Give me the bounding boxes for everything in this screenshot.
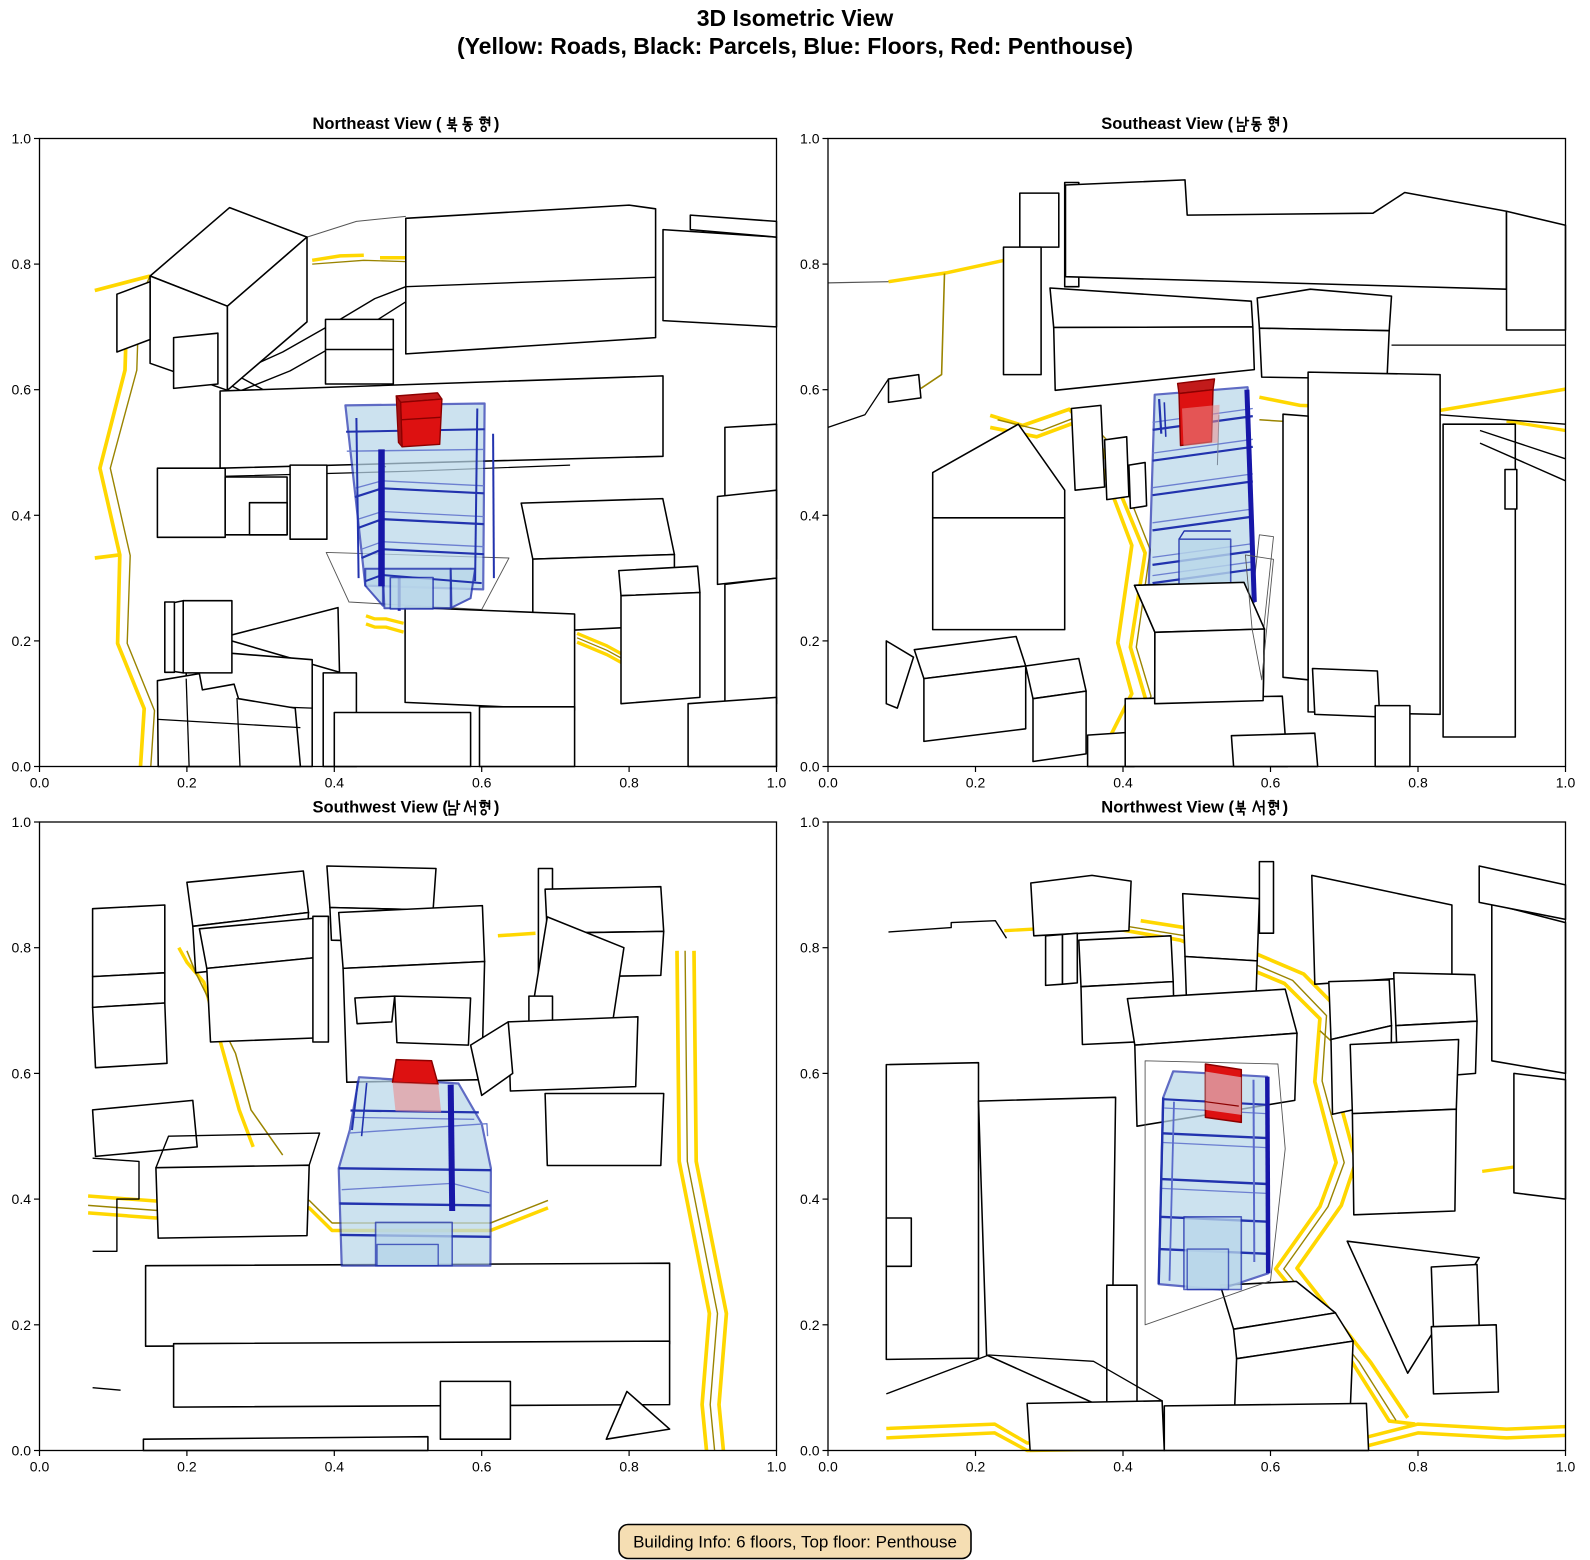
svg-text:0.6: 0.6: [800, 1065, 820, 1081]
svg-text:0.4: 0.4: [12, 507, 32, 523]
svg-text:0.0: 0.0: [30, 1459, 50, 1475]
svg-text:0.2: 0.2: [966, 1459, 986, 1475]
svg-text:0.2: 0.2: [177, 1459, 197, 1475]
svg-text:(Yellow: Roads, Black: Parcels: (Yellow: Roads, Black: Parcels, Blue: Fl…: [457, 33, 1133, 59]
svg-text:0.4: 0.4: [800, 507, 820, 523]
svg-text:0.2: 0.2: [800, 633, 820, 649]
svg-text:): ): [494, 115, 500, 133]
svg-text:0.6: 0.6: [12, 1065, 32, 1081]
svg-text:Northeast View (: Northeast View (: [313, 115, 442, 133]
svg-text:Southeast View (: Southeast View (: [1101, 115, 1233, 133]
svg-text:0.8: 0.8: [1408, 775, 1428, 791]
svg-text:0.0: 0.0: [800, 1443, 820, 1459]
svg-text:0.4: 0.4: [800, 1191, 820, 1207]
svg-text:3D Isometric View: 3D Isometric View: [697, 5, 894, 31]
svg-text:0.2: 0.2: [12, 1317, 32, 1333]
svg-text:0.6: 0.6: [1261, 775, 1281, 791]
svg-text:0.8: 0.8: [12, 256, 32, 272]
svg-text:1.0: 1.0: [800, 131, 820, 147]
svg-text:0.0: 0.0: [30, 775, 50, 791]
svg-text:1.0: 1.0: [1556, 1459, 1576, 1475]
svg-text:1.0: 1.0: [12, 814, 32, 830]
svg-text:0.8: 0.8: [800, 256, 820, 272]
svg-text:1.0: 1.0: [1556, 775, 1576, 791]
svg-text:0.8: 0.8: [800, 940, 820, 956]
svg-text:0.2: 0.2: [800, 1317, 820, 1333]
svg-text:0.0: 0.0: [800, 759, 820, 775]
svg-text:0.2: 0.2: [12, 633, 32, 649]
svg-text:1.0: 1.0: [800, 814, 820, 830]
svg-text:0.8: 0.8: [12, 940, 32, 956]
svg-text:0.0: 0.0: [818, 1459, 838, 1475]
svg-text:0.0: 0.0: [12, 759, 32, 775]
svg-text:0.6: 0.6: [800, 382, 820, 398]
svg-text:1.0: 1.0: [12, 131, 32, 147]
svg-text:): ): [494, 799, 500, 817]
svg-text:Northwest View (: Northwest View (: [1101, 799, 1234, 817]
svg-text:0.0: 0.0: [818, 775, 838, 791]
svg-text:0.4: 0.4: [325, 775, 345, 791]
svg-text:0.4: 0.4: [1113, 1459, 1133, 1475]
svg-text:0.4: 0.4: [12, 1191, 32, 1207]
svg-text:0.2: 0.2: [177, 775, 197, 791]
svg-text:0.0: 0.0: [12, 1443, 32, 1459]
svg-text:0.8: 0.8: [1408, 1459, 1428, 1475]
svg-text:0.4: 0.4: [1113, 775, 1133, 791]
svg-text:Building Info: 6 floors, Top f: Building Info: 6 floors, Top floor: Pent…: [633, 1533, 957, 1552]
svg-text:): ): [1283, 115, 1289, 133]
svg-text:0.6: 0.6: [12, 382, 32, 398]
svg-text:): ): [1283, 799, 1289, 817]
svg-text:0.8: 0.8: [619, 1459, 639, 1475]
svg-text:0.6: 0.6: [472, 775, 492, 791]
svg-text:0.6: 0.6: [1261, 1459, 1281, 1475]
svg-text:0.8: 0.8: [619, 775, 639, 791]
svg-text:0.4: 0.4: [325, 1459, 345, 1475]
svg-text:Southwest View (: Southwest View (: [313, 799, 449, 817]
svg-text:0.6: 0.6: [472, 1459, 492, 1475]
svg-text:0.2: 0.2: [966, 775, 986, 791]
svg-text:1.0: 1.0: [767, 775, 787, 791]
svg-text:1.0: 1.0: [767, 1459, 787, 1475]
